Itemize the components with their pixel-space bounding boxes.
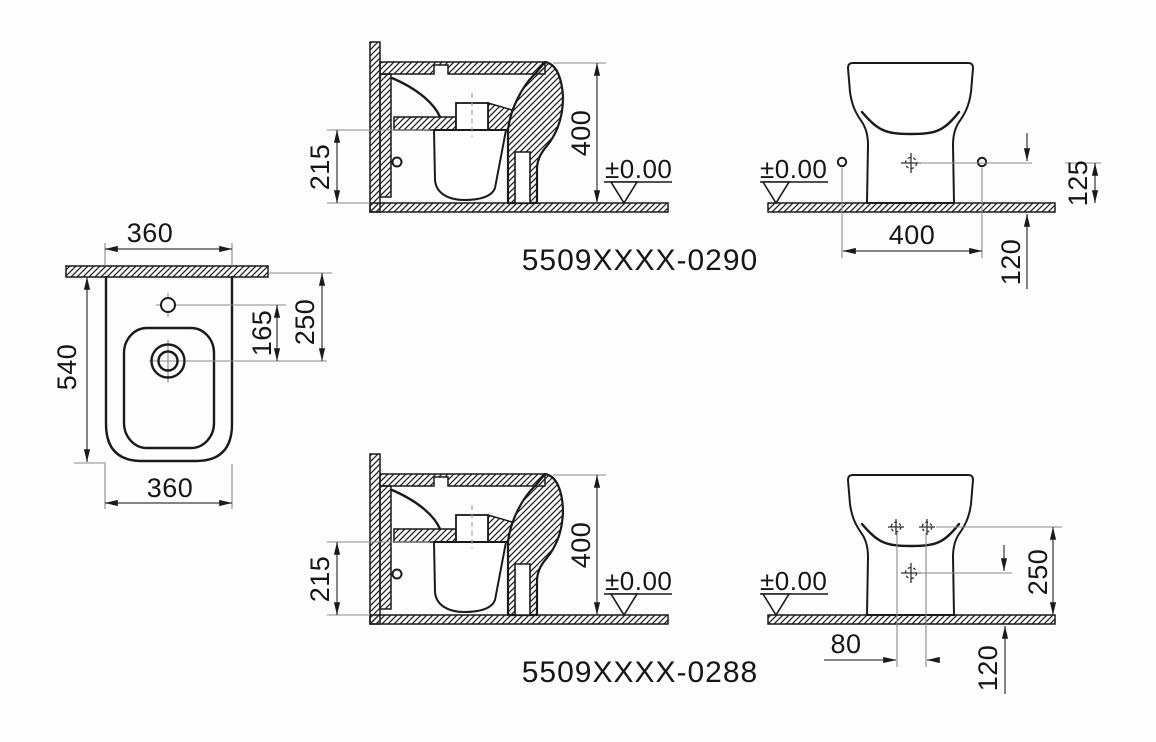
dim-drain-height: 120 (996, 239, 1026, 286)
floor-hatch-rear (768, 203, 1055, 212)
rim-section-hatch (380, 62, 545, 74)
technical-drawing-sheet: 360 540 165 250 360 (0, 0, 1156, 742)
bowl-floor-hatch (394, 529, 456, 542)
model-code: 5509XXXX-0288 (522, 656, 759, 689)
dim-hole-offset: 165 (247, 310, 277, 357)
tap-hole-plan (161, 298, 175, 312)
floor-hatch-rear (768, 615, 1055, 624)
bidet-installation-drawing: 360 540 165 250 360 (0, 0, 1156, 742)
dim-hole-height: 125 (1063, 160, 1093, 207)
datum-triangle-icon (611, 594, 637, 615)
side-section-view-0288: 215 400 ±0.00 5509XXXX-0288 (305, 454, 758, 689)
plan-view: 360 540 165 250 360 (52, 218, 332, 509)
wall-hatch-side (370, 454, 380, 624)
lower-basin-outline (434, 542, 506, 612)
floor-hatch-side (370, 615, 668, 624)
dim-width-top: 360 (127, 218, 174, 248)
fixing-hole-right (978, 158, 986, 166)
datum-label: ±0.00 (760, 154, 827, 184)
wall-hatch-plan (66, 266, 268, 277)
trap-hatch (488, 103, 512, 130)
trap-hatch (488, 515, 512, 542)
outlet-channel (515, 152, 530, 203)
datum-triangle-icon (763, 182, 789, 203)
side-section-view-0290: 215 400 ±0.00 5509XXXX-0290 (305, 42, 758, 277)
bowl-inner-curve (392, 78, 440, 117)
rear-view-0290: 400 125 120 ±0.00 (760, 63, 1101, 289)
datum-label: ±0.00 (760, 566, 827, 596)
dim-depth: 540 (52, 344, 82, 391)
dim-hole-height: 250 (1023, 549, 1053, 596)
back-section-hatch (380, 74, 391, 197)
bowl-floor-hatch (394, 117, 456, 130)
lower-basin-outline (434, 130, 506, 200)
bowl-inner-curve (392, 490, 440, 529)
dim-hole-spacing: 80 (830, 629, 861, 659)
wall-hatch-side (370, 42, 380, 212)
rear-view-0288: 80 250 120 ±0.00 (760, 475, 1062, 694)
drain-seat (456, 515, 488, 542)
dim-rim-height: 215 (305, 556, 335, 603)
basin-outline-plan (124, 328, 214, 448)
fixing-hole-left (838, 158, 846, 166)
dim-overall-height: 400 (566, 522, 596, 569)
datum-label: ±0.00 (605, 566, 672, 596)
model-code: 5509XXXX-0290 (522, 244, 759, 277)
back-section-hatch (380, 486, 391, 609)
outlet-channel (515, 564, 530, 615)
dim-drain-height: 120 (973, 645, 1003, 692)
floor-hatch-side (370, 203, 668, 212)
rim-section-hatch (380, 474, 545, 486)
dim-overall-height: 400 (566, 110, 596, 157)
fixing-hole-side (393, 158, 402, 167)
dim-wall-to-drain: 250 (290, 299, 320, 346)
dim-hole-spacing: 400 (889, 220, 936, 250)
datum-triangle-icon (763, 594, 789, 615)
datum-label: ±0.00 (605, 154, 672, 184)
datum-triangle-icon (611, 182, 637, 203)
fixing-hole-side (393, 570, 402, 579)
dim-width-bottom: 360 (147, 473, 194, 503)
dim-rim-height: 215 (305, 144, 335, 191)
drain-seat (456, 103, 488, 130)
